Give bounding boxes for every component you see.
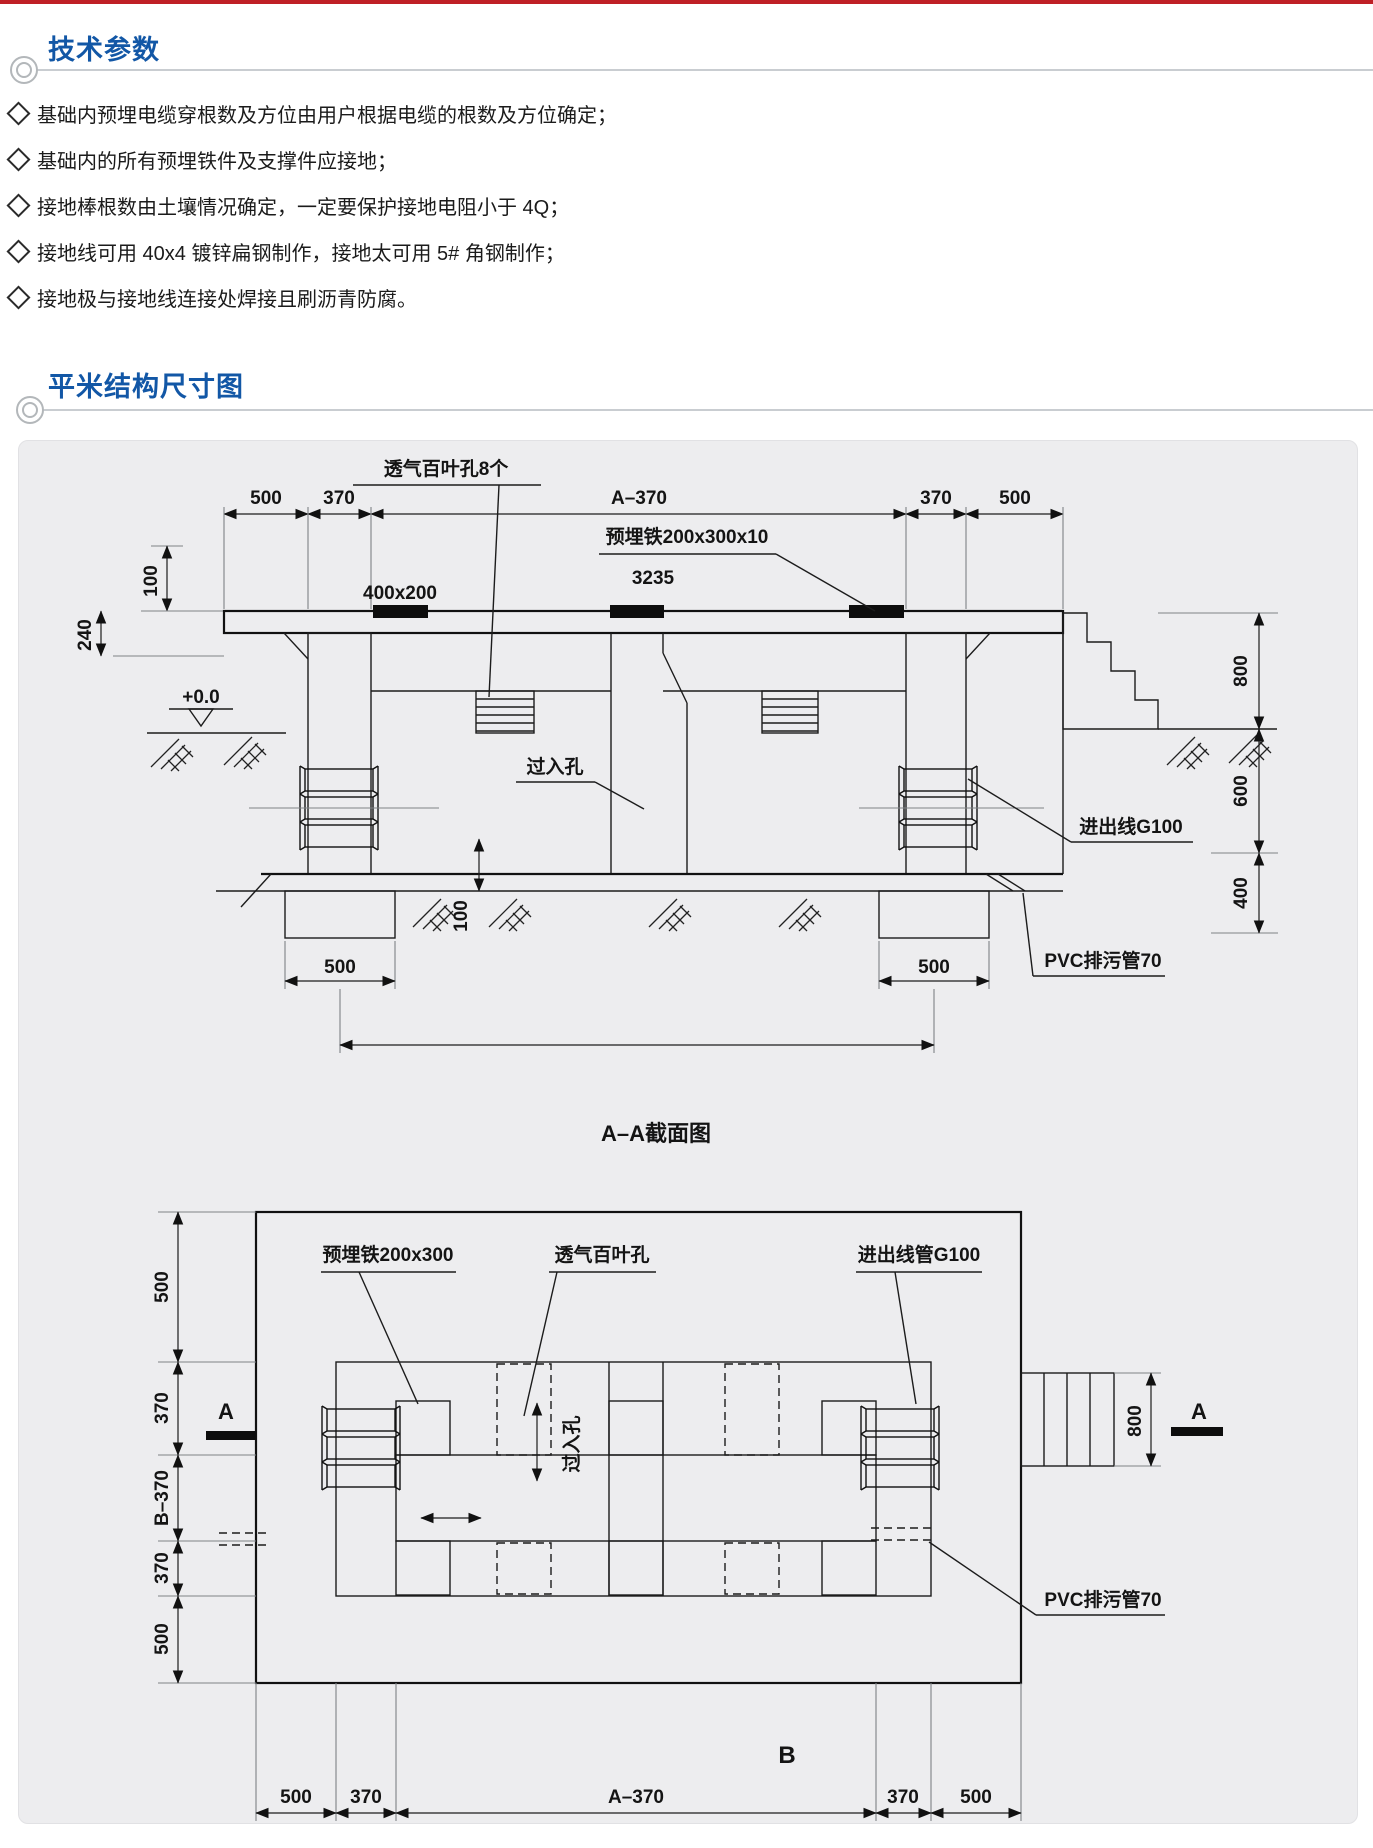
document-page: 技术参数 基础内预埋电缆穿根数及方位由用户根据电缆的根数及方位确定； 基础内的所… bbox=[0, 0, 1373, 1848]
dim-label: 500 bbox=[152, 1623, 173, 1655]
drawings-panel: 500 370 A–370 370 500 100 240 +0. bbox=[18, 440, 1358, 1824]
bullet-text: 接地极与接地线连接处焊接且刷沥青防腐。 bbox=[37, 283, 417, 312]
pit-outer-wall bbox=[336, 1362, 931, 1596]
dim-label: 500 bbox=[918, 957, 950, 978]
diamond-icon bbox=[6, 193, 30, 217]
diamond-icon bbox=[6, 285, 30, 309]
right-brick-wall bbox=[906, 633, 966, 874]
iron-note: 预埋铁200x300 bbox=[323, 1243, 454, 1266]
top-red-bar bbox=[0, 0, 1373, 4]
diamond-icon bbox=[6, 147, 30, 171]
stepped-brick-wall bbox=[1063, 613, 1158, 729]
section-view-drawing: 500 370 A–370 370 500 100 240 +0. bbox=[75, 457, 1278, 1146]
section1-title: 技术参数 bbox=[48, 28, 160, 67]
section2-title: 平米结构尺寸图 bbox=[48, 365, 244, 404]
level-label: +0.0 bbox=[182, 687, 220, 708]
dim-label: 500 bbox=[960, 1787, 992, 1808]
bullet-row: 接地线可用 40x4 镀锌扁钢制作，接地太可用 5# 角钢制作； bbox=[10, 237, 565, 266]
section-mark-bar bbox=[206, 1431, 256, 1440]
center-divider bbox=[611, 633, 687, 874]
bullet-text: 基础内的所有预埋铁件及支撑件应接地； bbox=[37, 145, 397, 174]
bullet-row: 接地棒根数由土壤情况确定，一定要保护接地电阻小于 4Q； bbox=[10, 191, 569, 220]
iron-note-leader bbox=[321, 1272, 456, 1404]
pvc-note: PVC排污管70 bbox=[1044, 1588, 1161, 1611]
pvc-note: PVC排污管70 bbox=[1044, 949, 1161, 972]
bullet-text: 接地棒根数由土壤情况确定，一定要保护接地电阻小于 4Q； bbox=[37, 191, 569, 220]
bullet-row: 基础内预埋电缆穿根数及方位由用户根据电缆的根数及方位确定； bbox=[10, 99, 617, 128]
dim-label: 100 bbox=[141, 565, 162, 597]
plan-caption: B bbox=[778, 1742, 795, 1769]
pit-opening bbox=[396, 1455, 876, 1541]
vent-size-label: 400x200 bbox=[363, 583, 437, 604]
louver-vent bbox=[476, 691, 534, 733]
section-caption: A–A截面图 bbox=[601, 1121, 711, 1146]
pvc-pipes-plan bbox=[219, 1528, 936, 1545]
right-footing bbox=[879, 891, 989, 938]
section-top-dim-chain bbox=[224, 507, 1063, 609]
dim-label: 500 bbox=[999, 488, 1031, 509]
section-mark: A bbox=[1191, 1399, 1207, 1424]
bullet-row: 接地极与接地线连接处焊接且刷沥青防腐。 bbox=[10, 283, 417, 312]
dim-label: 370 bbox=[152, 1552, 173, 1584]
cable-duct-spools bbox=[322, 1406, 400, 1490]
bullet-row: 基础内的所有预埋铁件及支撑件应接地； bbox=[10, 145, 397, 174]
dim-label: B–370 bbox=[152, 1470, 173, 1526]
foundation-outline bbox=[256, 1212, 1021, 1683]
section1-rule bbox=[24, 69, 1373, 71]
section-left-dims bbox=[101, 546, 224, 656]
left-footing bbox=[285, 891, 395, 938]
diamond-icon bbox=[6, 101, 30, 125]
cable-note: 进出线管G100 bbox=[858, 1243, 980, 1266]
ground-level-marker bbox=[147, 709, 286, 771]
dim-label: A–370 bbox=[608, 1787, 664, 1808]
diamond-icon bbox=[6, 239, 30, 263]
dim-label: 370 bbox=[323, 488, 355, 509]
dim-label: 400 bbox=[1231, 877, 1252, 909]
plan-view-drawing: PVC排污管70 800 A A bbox=[152, 1212, 1223, 1821]
vent-note: 透气百叶孔 bbox=[554, 1243, 649, 1266]
dim-label: 500 bbox=[324, 957, 356, 978]
drawings-svg: 500 370 A–370 370 500 100 240 +0. bbox=[19, 441, 1357, 1823]
vent-note: 透气百叶孔8个 bbox=[384, 457, 510, 480]
dim-label: 500 bbox=[152, 1271, 173, 1303]
left-brick-wall bbox=[308, 633, 371, 874]
manhole-label: 过入孔 bbox=[526, 756, 583, 778]
embedded-iron-plates-plan bbox=[396, 1401, 876, 1595]
dim-label: 370 bbox=[152, 1392, 173, 1424]
plan-center-divider bbox=[609, 1362, 663, 1596]
dim-label: 800 bbox=[1231, 655, 1252, 687]
section-mark-bar bbox=[1171, 1427, 1223, 1436]
pvc-pipe-section bbox=[986, 874, 1025, 891]
cable-trench-plan bbox=[1021, 1373, 1114, 1466]
manhole-leader bbox=[516, 782, 644, 809]
dim-label: 800 bbox=[1125, 1405, 1146, 1437]
section-mark: A bbox=[218, 1399, 234, 1424]
vent-note-leader bbox=[524, 1272, 656, 1416]
base-slab bbox=[216, 874, 1063, 931]
footing-dims bbox=[285, 941, 989, 1053]
wall-corbels bbox=[284, 633, 990, 659]
bullet-text: 基础内预埋电缆穿根数及方位由用户根据电缆的根数及方位确定； bbox=[37, 99, 617, 128]
section-right-dims bbox=[1158, 613, 1278, 933]
dim-label: 370 bbox=[350, 1787, 382, 1808]
dim-label: 100 bbox=[451, 900, 472, 932]
dim-label: 370 bbox=[887, 1787, 919, 1808]
dim-label: 500 bbox=[250, 488, 282, 509]
iron-note: 预埋铁200x300x10 bbox=[606, 525, 769, 548]
cable-note-leader bbox=[856, 1272, 982, 1404]
dim-label: 600 bbox=[1231, 775, 1252, 807]
louver-vents-plan bbox=[497, 1364, 779, 1594]
cable-duct-spools bbox=[861, 1406, 939, 1490]
bullet-text: 接地线可用 40x4 镀锌扁钢制作，接地太可用 5# 角钢制作； bbox=[37, 237, 565, 266]
iron-number: 3235 bbox=[632, 568, 675, 589]
dim-label: 370 bbox=[920, 488, 952, 509]
manhole-label: 过入孔 bbox=[561, 1415, 583, 1472]
dim-label: 240 bbox=[75, 619, 96, 651]
ring-ornament-icon bbox=[10, 56, 38, 84]
dim-label: 500 bbox=[280, 1787, 312, 1808]
cable-note: 进出线G100 bbox=[1079, 815, 1182, 838]
dim-label: A–370 bbox=[611, 488, 667, 509]
section2-rule bbox=[30, 409, 1373, 411]
louver-vent bbox=[762, 691, 818, 733]
ring-ornament-icon bbox=[16, 396, 44, 424]
